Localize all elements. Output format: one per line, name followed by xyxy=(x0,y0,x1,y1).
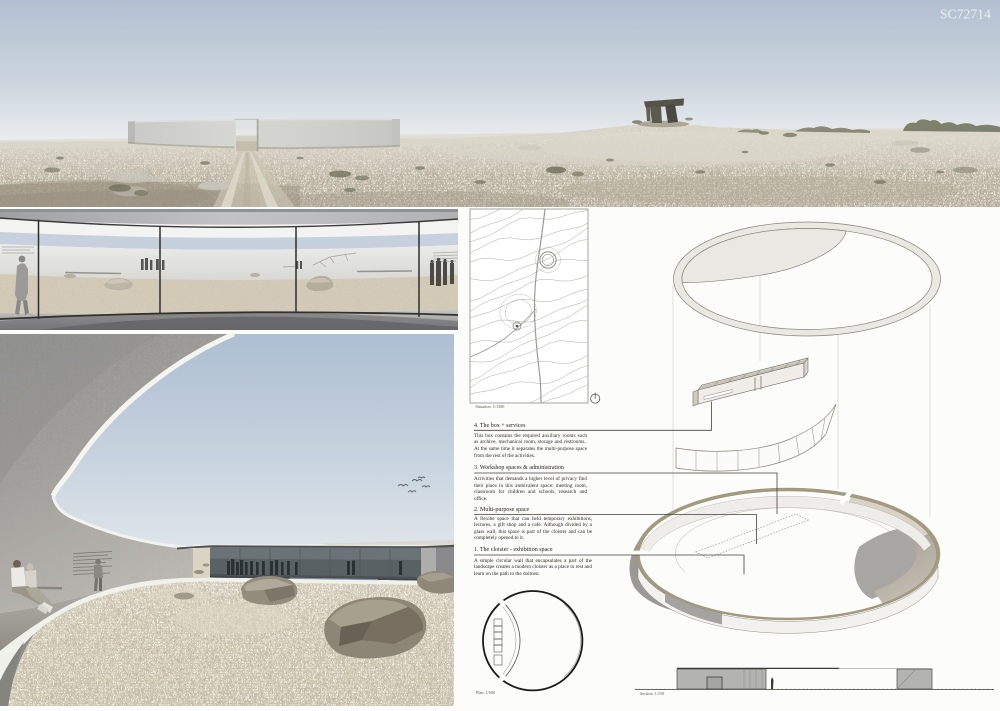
svg-text:Section. 1/150: Section. 1/150 xyxy=(640,691,664,696)
svg-text:Situation. 1/1500: Situation. 1/1500 xyxy=(476,404,505,409)
svg-text:SC72714: SC72714 xyxy=(940,6,991,21)
svg-text:Plan. 1/500: Plan. 1/500 xyxy=(476,690,495,695)
